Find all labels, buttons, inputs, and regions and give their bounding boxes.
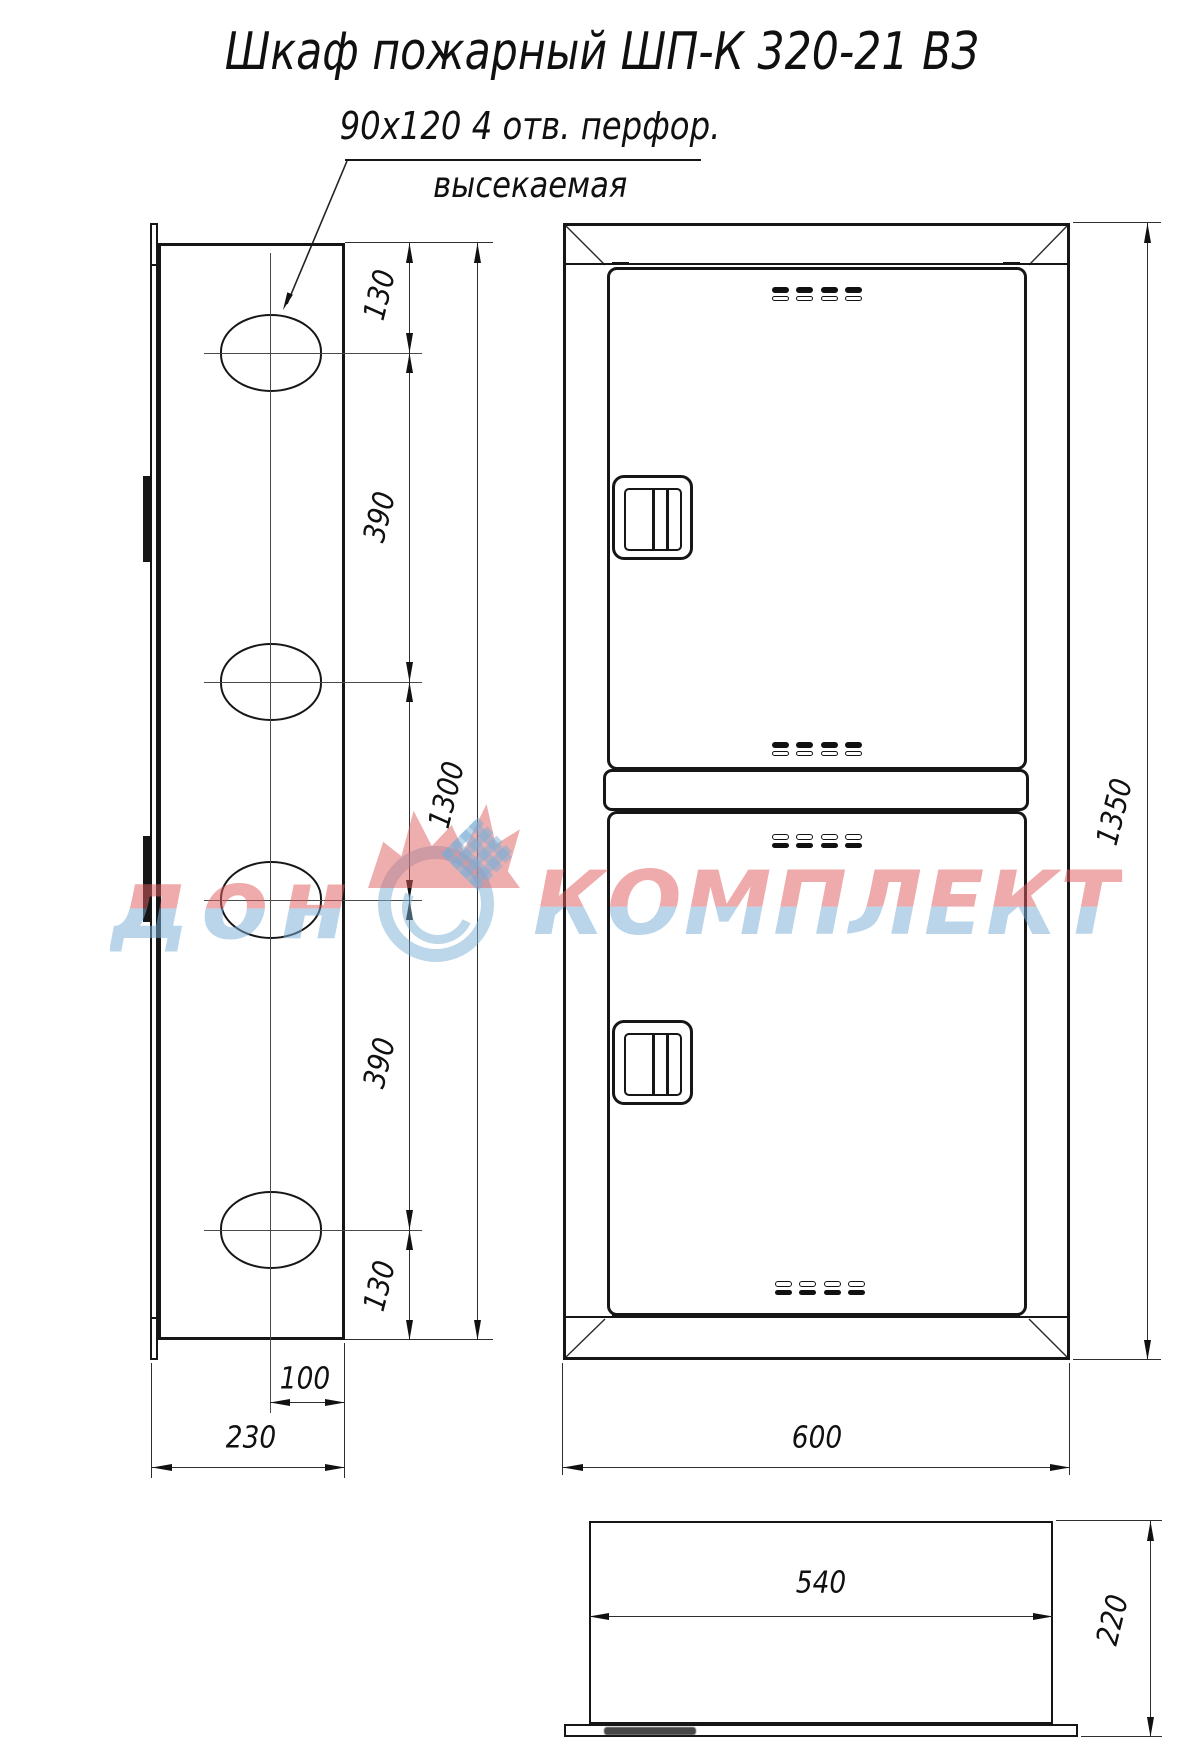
wall-bracket xyxy=(143,476,150,562)
extension-line xyxy=(1056,1520,1162,1521)
vent-slot xyxy=(775,1290,792,1296)
vent-slot xyxy=(775,1281,792,1287)
vent-slot xyxy=(821,287,838,293)
extension-line xyxy=(344,1343,345,1478)
dimension-line-1350 xyxy=(1147,223,1148,1360)
dim-label-540: 540 xyxy=(796,1566,846,1601)
dim-label-230: 230 xyxy=(226,1421,276,1456)
hole-centerline xyxy=(204,353,422,354)
vent-slot xyxy=(848,1290,865,1296)
extension-line xyxy=(151,1363,152,1478)
vent-slot xyxy=(845,296,862,302)
handle-detail-line xyxy=(652,490,655,549)
dim-label-100: 100 xyxy=(280,1362,330,1397)
vent-slot xyxy=(796,843,813,849)
vent-slot xyxy=(845,843,862,849)
dimension-line-220 xyxy=(1150,1521,1151,1737)
vent-slot xyxy=(848,1281,865,1287)
vent-slot xyxy=(821,751,838,757)
vertical-centerline xyxy=(270,253,271,1413)
side-panel-body xyxy=(158,243,345,1340)
handle-detail-line xyxy=(666,490,669,549)
dimension-line-600 xyxy=(563,1467,1070,1468)
vent-slot xyxy=(796,742,813,748)
handle-detail-line xyxy=(666,1035,669,1094)
vent-slot xyxy=(821,834,838,840)
frame-inner-bottom-line xyxy=(566,1316,1067,1318)
hinge-mark xyxy=(1003,1314,1020,1317)
mounting-flange xyxy=(150,223,158,1360)
vent-slot xyxy=(772,287,789,293)
vent-slot xyxy=(799,1281,816,1287)
vent-slot xyxy=(796,287,813,293)
dimension-line-1300 xyxy=(477,243,478,1340)
vent-slot xyxy=(824,1281,841,1287)
hinge-mark xyxy=(612,1314,629,1317)
vent-slot xyxy=(796,751,813,757)
vent-slot xyxy=(796,834,813,840)
vent-slot xyxy=(845,742,862,748)
vent-slot xyxy=(772,834,789,840)
watermark-smudge xyxy=(604,1727,696,1735)
dimension-line-540 xyxy=(589,1616,1053,1617)
hole-centerline xyxy=(204,682,422,683)
extension-line xyxy=(345,242,493,243)
vent-slot xyxy=(799,1290,816,1296)
cabinet-body-top-view xyxy=(589,1521,1053,1724)
extension-line xyxy=(1069,1363,1070,1475)
vent-slot xyxy=(821,843,838,849)
vent-slot xyxy=(772,843,789,849)
vent-slot xyxy=(772,296,789,302)
hole-centerline xyxy=(204,900,422,901)
flange-joint-line xyxy=(150,264,158,266)
vent-slot xyxy=(845,751,862,757)
extension-line xyxy=(562,1363,563,1475)
vent-slot xyxy=(821,742,838,748)
vent-slot xyxy=(824,1290,841,1296)
handle-detail-line xyxy=(652,1035,655,1094)
hinge-mark xyxy=(612,262,629,265)
flange-joint-line xyxy=(150,1317,158,1319)
dimension-line-230 xyxy=(152,1467,345,1468)
vent-slot xyxy=(772,751,789,757)
vent-slot xyxy=(845,287,862,293)
hinge-mark xyxy=(1003,262,1020,265)
frame-inner-top-line xyxy=(566,263,1067,265)
wall-bracket xyxy=(143,836,150,922)
vent-slot xyxy=(796,296,813,302)
vent-slot xyxy=(821,296,838,302)
vent-slot xyxy=(845,834,862,840)
middle-divider-panel xyxy=(603,769,1029,811)
dim-label-600: 600 xyxy=(792,1421,842,1456)
dimension-line-chain xyxy=(409,243,410,1340)
extension-line xyxy=(345,1339,493,1340)
hole-centerline xyxy=(204,1230,422,1231)
technical-drawing-canvas: Шкаф пожарный ШП-К 320-21 ВЗ 90х120 4 от… xyxy=(0,0,1203,1760)
vent-slot xyxy=(772,742,789,748)
